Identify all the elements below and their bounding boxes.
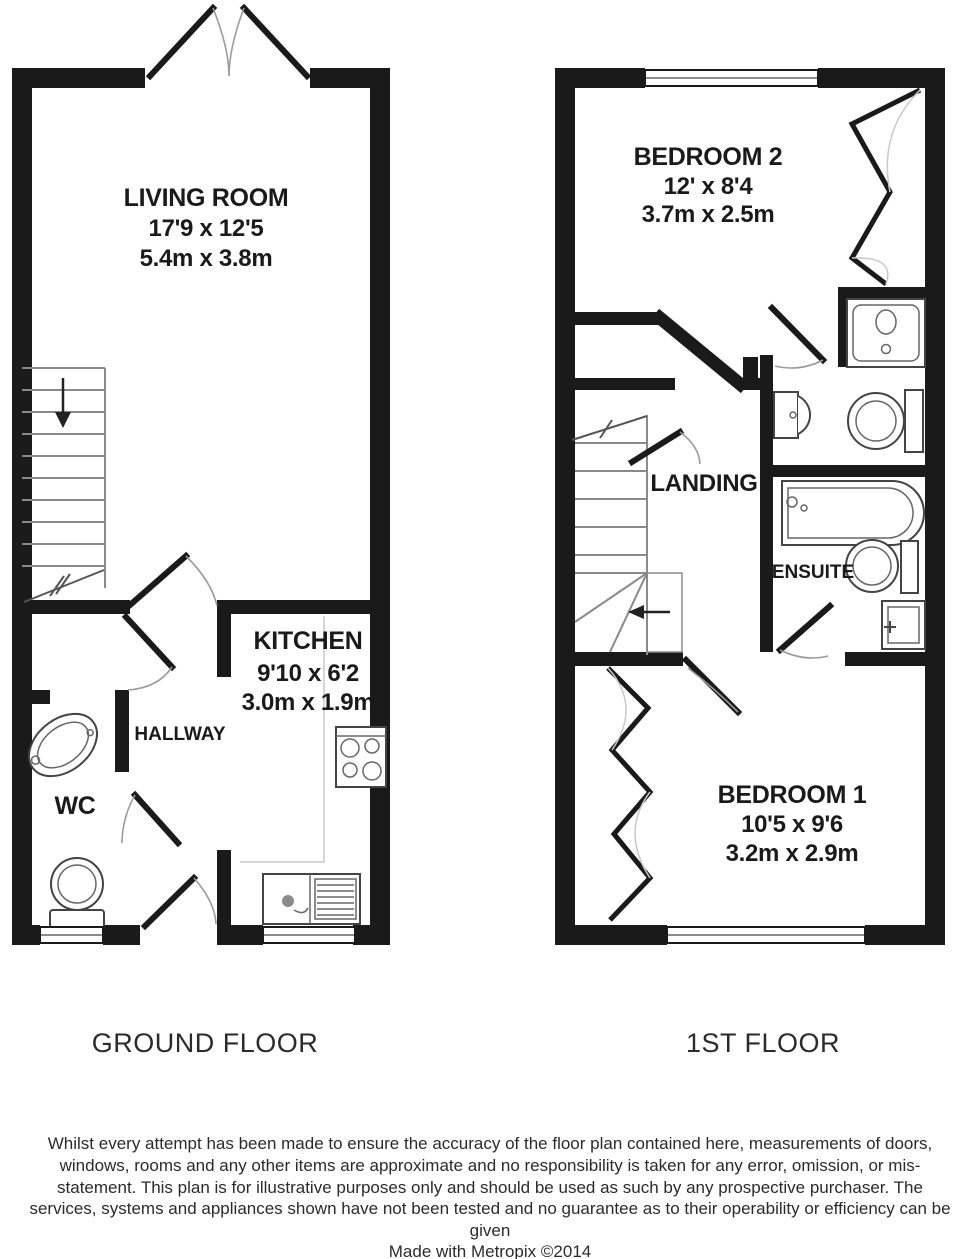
bedroom2-wardrobe-zigzag [852, 90, 920, 284]
kitchen-window [263, 927, 355, 943]
bedroom2-door [632, 432, 700, 464]
first-floor-title: 1ST FLOOR [686, 1028, 840, 1058]
bedroom2-window [645, 70, 818, 86]
wc-window [40, 927, 103, 943]
stairs-direction-arrow [628, 605, 670, 619]
wc-toilet-fixture [50, 858, 104, 928]
footer: Whilst every attempt has been made to en… [25, 1075, 955, 1259]
wc-door [122, 795, 178, 843]
bedroom1-window [667, 927, 865, 943]
ground-floor-title: GROUND FLOOR [92, 1028, 319, 1058]
wc-label: WC [54, 792, 95, 820]
hob-fixture [336, 727, 386, 787]
ensuite-sink-fixture [882, 601, 925, 649]
disclaimer-text: Whilst every attempt has been made to en… [25, 1133, 955, 1242]
bedroom1-metric: 3.2m x 2.9m [726, 840, 859, 867]
hallway-label: HALLWAY [134, 724, 225, 745]
bath-fixture [782, 481, 924, 545]
living-room-door [130, 556, 217, 606]
bedroom2-imperial: 12' x 8'4 [664, 173, 754, 200]
ground-floor-stairs [22, 368, 105, 602]
bathroom-basin-fixture [774, 392, 810, 438]
kitchen-metric: 3.0m x 1.9m [242, 689, 375, 716]
ensuite-toilet-fixture [846, 540, 918, 593]
ensuite-door [780, 606, 830, 658]
ground-floor-plan: LIVING ROOM 17'9 x 12'5 5.4m x 3.8m KITC… [12, 8, 390, 945]
bedroom1-label: BEDROOM 1 [718, 781, 867, 809]
bedroom2-metric: 3.7m x 2.5m [642, 201, 775, 228]
first-floor-plan: BEDROOM 2 12' x 8'4 3.7m x 2.5m LANDING … [555, 68, 945, 945]
ensuite-label: ENSUITE [772, 562, 854, 583]
shower-fixture [847, 299, 925, 367]
hallway-door [126, 617, 172, 690]
french-doors [150, 8, 307, 76]
front-door [145, 878, 216, 926]
living-room-metric: 5.4m x 3.8m [140, 245, 273, 272]
bathroom-door [772, 308, 823, 368]
kitchen-label: KITCHEN [253, 627, 362, 655]
bedroom2-label: BEDROOM 2 [634, 143, 783, 171]
living-room-label: LIVING ROOM [124, 184, 289, 212]
kitchen-sink-fixture [263, 874, 360, 924]
first-floor-stairs [572, 415, 682, 655]
metropix-credit: Made with Metropix ©2014 [25, 1242, 955, 1259]
kitchen-imperial: 9'10 x 6'2 [257, 660, 359, 687]
stairs-down-arrow [55, 378, 71, 428]
bathroom-toilet-fixture [848, 390, 923, 452]
living-room-imperial: 17'9 x 12'5 [149, 215, 264, 242]
bedroom1-wardrobe-zigzag [608, 668, 650, 920]
landing-label: LANDING [650, 470, 757, 497]
bedroom1-door [686, 660, 738, 712]
floorplan-page: LIVING ROOM 17'9 x 12'5 5.4m x 3.8m KITC… [0, 0, 980, 1259]
bedroom1-imperial: 10'5 x 9'6 [741, 811, 843, 838]
floor-plan-canvas: LIVING ROOM 17'9 x 12'5 5.4m x 3.8m KITC… [0, 0, 980, 1075]
